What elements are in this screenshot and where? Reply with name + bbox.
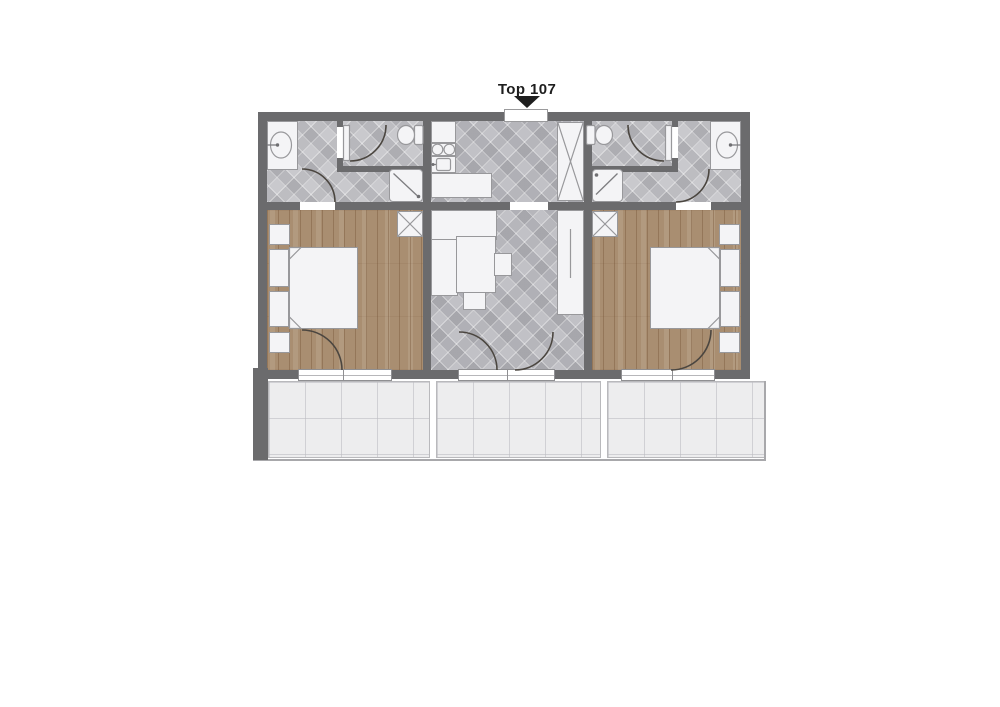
kitchen-counter [431, 121, 456, 143]
coffee-table [494, 253, 512, 276]
stool [463, 292, 486, 310]
balcony-left-floor [268, 381, 430, 458]
shower-left [389, 169, 423, 202]
kitchen-cooktop [431, 143, 456, 156]
window-mullion [672, 370, 673, 380]
hall-passage-opening [510, 202, 548, 210]
bed-right [650, 247, 720, 329]
wc-right-door-opening [672, 127, 678, 158]
balcony-railing-bottom [253, 459, 766, 461]
wall-right [741, 121, 750, 379]
nightstand [719, 332, 740, 353]
vanity-right [710, 121, 741, 170]
wall-middle [267, 202, 741, 210]
window-bedroom-left [298, 369, 392, 381]
kitchen-counter-l [431, 173, 492, 198]
balcony-left-wall [253, 368, 268, 460]
wall-interior-left [423, 121, 431, 370]
pillow [720, 249, 740, 287]
entrance-door-opening [504, 109, 548, 122]
balcony-center-floor [436, 381, 601, 458]
sideboard [557, 210, 584, 315]
nightstand [719, 224, 740, 245]
wc-left-door-opening [337, 127, 343, 158]
kitchen-sink-unit [431, 156, 456, 173]
window-bedroom-right [621, 369, 715, 381]
balcony-railing-right [764, 381, 766, 461]
wall-left [258, 121, 267, 379]
sofa-seat [456, 236, 496, 293]
window-living-room [458, 369, 555, 381]
hall-wardrobe [557, 122, 584, 201]
pillow [269, 291, 289, 327]
nightstand [269, 224, 290, 245]
bedroom-left-door-opening [300, 202, 335, 210]
shower-right [592, 169, 623, 202]
wardrobe-bedroom-left [397, 211, 423, 237]
window-mullion [507, 370, 508, 380]
bed-left [289, 247, 358, 329]
window-mullion [343, 370, 344, 380]
entrance-arrow-icon [514, 96, 540, 108]
pillow [720, 291, 740, 327]
nightstand [269, 332, 290, 353]
wall-interior-right [584, 121, 592, 370]
bedroom-right-door-opening [676, 202, 711, 210]
balcony-right-floor [607, 381, 765, 458]
vanity-left [267, 121, 298, 170]
wardrobe-bedroom-right [592, 211, 618, 237]
floor-plan: Top 107 [0, 0, 1000, 707]
pillow [269, 249, 289, 287]
